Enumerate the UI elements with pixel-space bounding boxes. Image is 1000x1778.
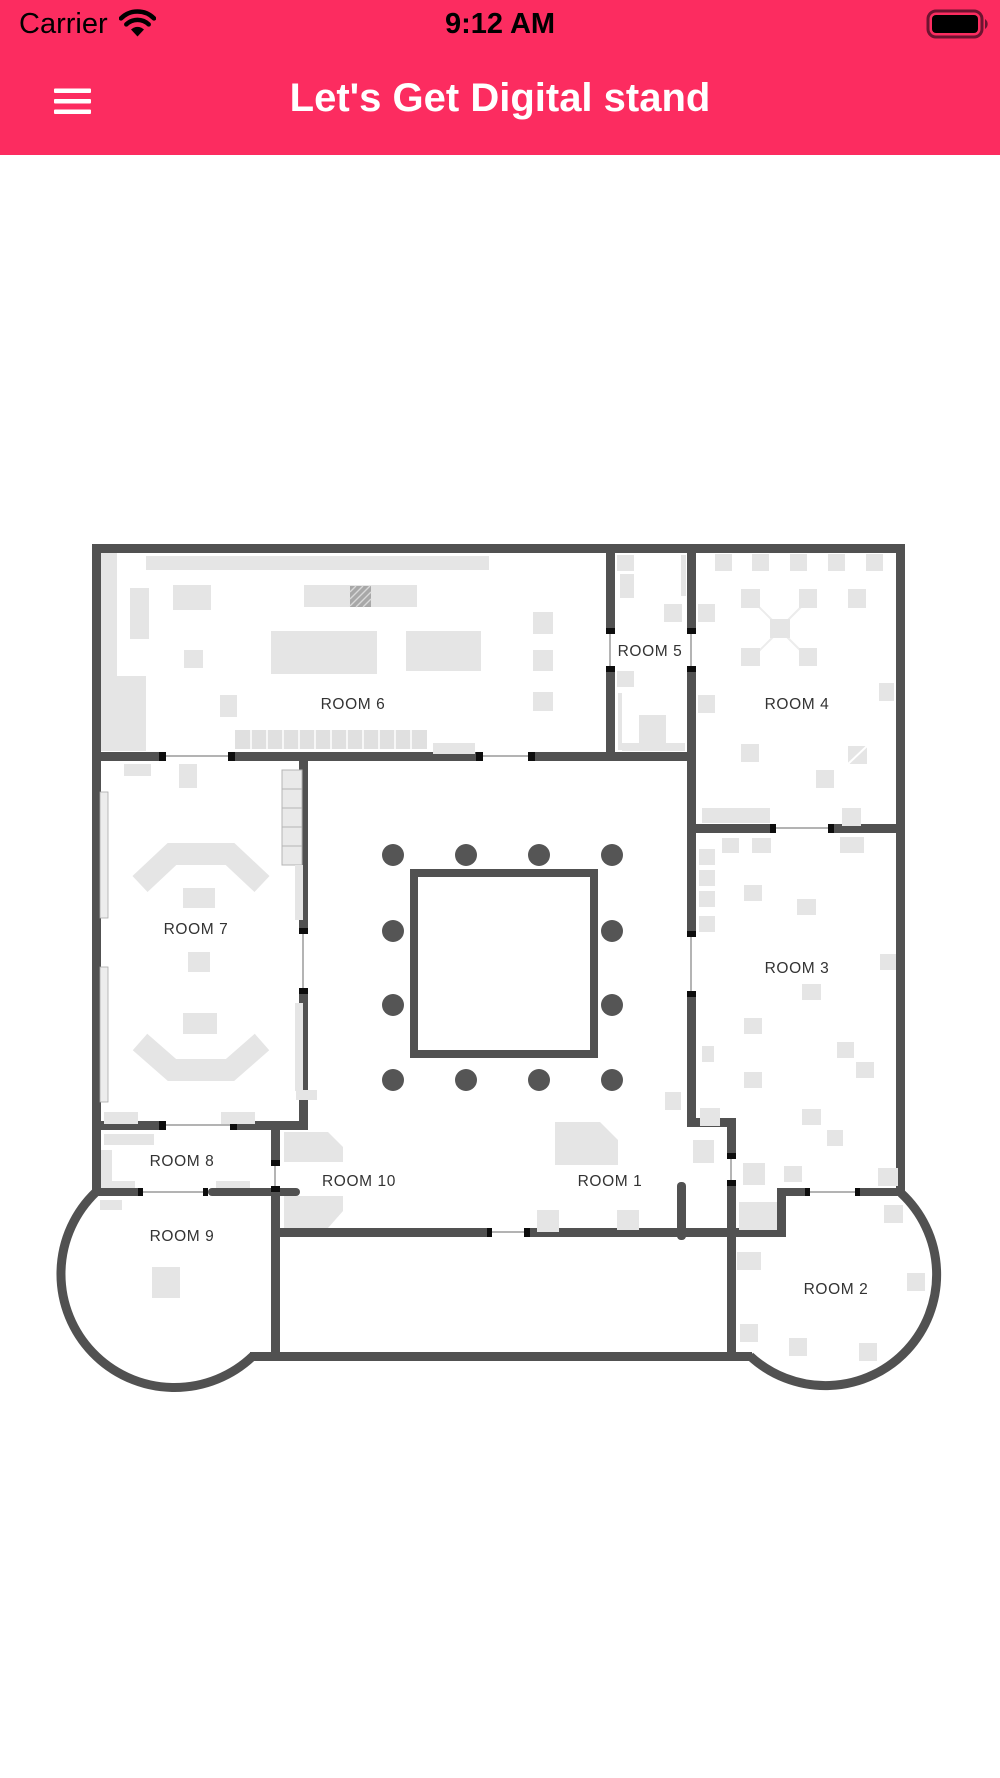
svg-text:ROOM 2: ROOM 2 [804, 1281, 869, 1298]
svg-text:ROOM 10: ROOM 10 [322, 1173, 396, 1190]
svg-text:ROOM 1: ROOM 1 [578, 1173, 643, 1190]
svg-text:ROOM 7: ROOM 7 [164, 921, 229, 938]
svg-text:ROOM 8: ROOM 8 [150, 1153, 215, 1170]
svg-text:ROOM 3: ROOM 3 [765, 960, 830, 977]
svg-text:ROOM 5: ROOM 5 [618, 643, 683, 660]
svg-text:ROOM 4: ROOM 4 [765, 696, 830, 713]
svg-text:ROOM 9: ROOM 9 [150, 1228, 215, 1245]
svg-text:ROOM 6: ROOM 6 [321, 696, 386, 713]
